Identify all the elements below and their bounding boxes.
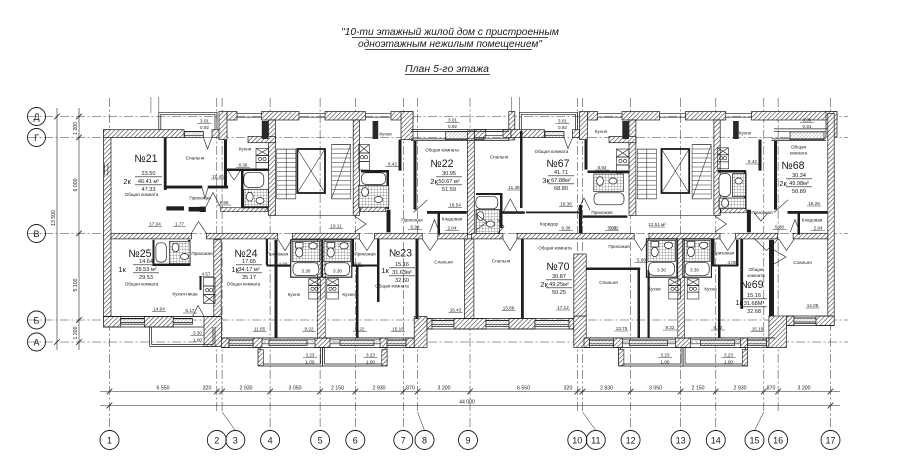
svg-text:49.98м²: 49.98м² — [789, 181, 809, 187]
svg-text:4.00: 4.00 — [353, 262, 362, 267]
svg-text:Б: Б — [34, 315, 40, 325]
svg-text:0.92: 0.92 — [448, 124, 457, 129]
svg-text:Общая комната: Общая комната — [425, 148, 459, 153]
svg-text:комната: комната — [747, 273, 765, 278]
svg-text:16.26: 16.26 — [808, 201, 820, 206]
svg-text:17.04: 17.04 — [149, 222, 161, 227]
svg-text:5.56: 5.56 — [220, 200, 229, 205]
svg-text:Общая комната: Общая комната — [227, 282, 261, 287]
svg-text:1 200: 1 200 — [73, 122, 79, 135]
svg-text:2 930: 2 930 — [240, 385, 253, 391]
svg-text:Общая комната: Общая комната — [538, 246, 572, 251]
svg-text:6 550: 6 550 — [157, 385, 170, 391]
svg-text:Кухня: Кухня — [648, 287, 661, 292]
svg-text:41.71: 41.71 — [554, 170, 568, 176]
svg-text:Кухня-ниша: Кухня-ниша — [172, 292, 198, 297]
svg-text:комната: комната — [790, 151, 808, 156]
svg-text:3: 3 — [233, 435, 238, 445]
svg-text:3 200: 3 200 — [798, 385, 811, 391]
svg-text:6 000: 6 000 — [73, 178, 79, 191]
svg-text:12.51 м²: 12.51 м² — [648, 222, 666, 227]
svg-text:17: 17 — [825, 435, 835, 445]
svg-text:А: А — [33, 337, 39, 347]
svg-text:Спальня: Спальня — [490, 155, 509, 160]
svg-text:План 5-го этажа: План 5-го этажа — [405, 63, 489, 75]
svg-text:67.88м²: 67.88м² — [551, 178, 571, 184]
svg-text:Кладовая: Кладовая — [802, 218, 823, 223]
svg-text:2 150: 2 150 — [331, 385, 344, 391]
svg-text:30.34: 30.34 — [792, 173, 806, 179]
svg-text:51.59: 51.59 — [442, 187, 456, 193]
svg-text:31.68М²: 31.68М² — [744, 301, 765, 307]
svg-text:9.22: 9.22 — [356, 327, 365, 332]
svg-text:8.92: 8.92 — [598, 165, 607, 170]
svg-text:Прихожая: Прихожая — [608, 244, 630, 249]
svg-text:4.00: 4.00 — [279, 262, 288, 267]
svg-text:15: 15 — [749, 435, 759, 445]
svg-text:Спальня: Спальня — [599, 280, 618, 285]
svg-text:0.92: 0.92 — [558, 125, 567, 130]
svg-text:14: 14 — [711, 435, 721, 445]
svg-text:Кухня: Кухня — [595, 129, 608, 134]
svg-text:5.96: 5.96 — [411, 225, 420, 230]
svg-text:31.63м²: 31.63м² — [392, 270, 412, 276]
svg-text:11.65: 11.65 — [254, 327, 266, 332]
svg-text:8: 8 — [422, 435, 427, 445]
svg-text:5 100: 5 100 — [73, 278, 79, 291]
svg-text:8.42: 8.42 — [388, 162, 397, 167]
svg-text:8.36: 8.36 — [239, 163, 248, 168]
svg-text:6.17: 6.17 — [186, 308, 195, 313]
svg-text:11.49: 11.49 — [508, 185, 520, 190]
svg-text:15.16: 15.16 — [747, 293, 761, 299]
svg-text:3.99: 3.99 — [803, 118, 812, 123]
svg-text:1к: 1к — [381, 266, 389, 275]
svg-text:1к: 1к — [118, 265, 126, 274]
svg-text:16.36: 16.36 — [560, 202, 572, 207]
svg-text:1.00: 1.00 — [724, 360, 733, 365]
svg-text:17.65: 17.65 — [242, 259, 256, 265]
svg-text:9.22: 9.22 — [305, 327, 314, 332]
svg-text:2 930: 2 930 — [600, 385, 613, 391]
svg-text:10: 10 — [572, 435, 582, 445]
svg-text:3 050: 3 050 — [649, 385, 662, 391]
svg-text:1.00: 1.00 — [661, 360, 670, 365]
svg-text:Г: Г — [34, 133, 39, 143]
svg-text:Кухня: Кухня — [704, 287, 717, 292]
svg-text:16: 16 — [773, 435, 783, 445]
svg-text:870: 870 — [767, 385, 776, 391]
svg-text:2 930: 2 930 — [734, 385, 747, 391]
svg-text:№23: №23 — [389, 248, 412, 260]
svg-text:34.17 м²: 34.17 м² — [238, 267, 259, 273]
svg-text:12: 12 — [626, 435, 636, 445]
svg-text:16.43: 16.43 — [450, 308, 462, 313]
svg-text:№70: №70 — [546, 261, 569, 273]
svg-text:15.16: 15.16 — [392, 327, 404, 332]
svg-text:3.01: 3.01 — [200, 119, 209, 124]
svg-text:Д: Д — [33, 112, 39, 122]
svg-text:3 200: 3 200 — [438, 385, 451, 391]
svg-text:Спальня: Спальня — [186, 156, 205, 161]
svg-text:8.42: 8.42 — [748, 159, 757, 164]
svg-text:Прихожая: Прихожая — [713, 251, 735, 256]
svg-text:3.23: 3.23 — [724, 353, 733, 358]
svg-text:Кухня: Кухня — [342, 292, 355, 297]
svg-text:29.53: 29.53 — [139, 275, 153, 281]
svg-text:28.53 м²: 28.53 м² — [135, 267, 156, 273]
svg-text:11: 11 — [591, 435, 600, 445]
svg-text:2 150: 2 150 — [692, 385, 705, 391]
svg-text:2 930: 2 930 — [373, 385, 386, 391]
svg-text:6 550: 6 550 — [517, 385, 530, 391]
svg-text:Кухня: Кухня — [239, 147, 252, 152]
svg-text:50.67 м²: 50.67 м² — [438, 179, 459, 185]
svg-text:4.00: 4.00 — [728, 260, 737, 265]
svg-text:23.50: 23.50 — [142, 171, 156, 177]
svg-text:3.23: 3.23 — [366, 353, 375, 358]
svg-text:№68: №68 — [781, 160, 804, 172]
svg-text:Прихожая: Прихожая — [191, 251, 213, 256]
svg-text:Спальня: Спальня — [434, 260, 453, 265]
svg-text:5.86: 5.86 — [637, 258, 646, 263]
svg-text:В: В — [33, 229, 39, 239]
svg-text:1.00: 1.00 — [366, 360, 375, 365]
svg-text:16.54: 16.54 — [449, 203, 461, 208]
svg-text:3.30: 3.30 — [302, 269, 311, 274]
svg-text:14.08: 14.08 — [807, 303, 819, 308]
svg-text:13 500: 13 500 — [51, 210, 57, 226]
svg-text:49.25м²: 49.25м² — [549, 282, 569, 288]
svg-text:4.57: 4.57 — [202, 272, 211, 277]
svg-text:Прихожая: Прихожая — [591, 210, 613, 215]
svg-text:3.23: 3.23 — [661, 353, 670, 358]
svg-text:Общая комната: Общая комната — [375, 284, 409, 289]
svg-text:0.91: 0.91 — [803, 124, 812, 129]
svg-text:Прихожая: Прихожая — [401, 218, 423, 223]
svg-text:Кладовая: Кладовая — [442, 217, 463, 222]
svg-text:44 000: 44 000 — [459, 399, 475, 405]
svg-text:3.30: 3.30 — [193, 331, 202, 336]
svg-text:Прихожая: Прихожая — [267, 252, 289, 257]
svg-text:10.46: 10.46 — [212, 174, 224, 179]
svg-text:1к: 1к — [735, 298, 743, 307]
svg-text:7: 7 — [401, 435, 406, 445]
svg-text:№69: №69 — [740, 279, 763, 291]
svg-text:30.95: 30.95 — [442, 171, 456, 177]
svg-text:№22: №22 — [430, 158, 453, 170]
svg-text:6: 6 — [353, 435, 358, 445]
svg-text:Общая: Общая — [791, 145, 807, 150]
svg-text:Прихожая: Прихожая — [189, 196, 211, 201]
svg-text:35.17: 35.17 — [242, 275, 256, 281]
svg-text:Прихожая: Прихожая — [751, 210, 773, 215]
svg-text:№21: №21 — [134, 153, 157, 165]
svg-text:1.77: 1.77 — [175, 222, 184, 227]
svg-text:17.12: 17.12 — [557, 305, 569, 310]
svg-text:5: 5 — [318, 435, 323, 445]
svg-text:320: 320 — [564, 385, 573, 391]
svg-text:1.00: 1.00 — [306, 360, 315, 365]
svg-text:1.00: 1.00 — [193, 338, 202, 343]
svg-text:Общая комната: Общая комната — [535, 149, 569, 154]
svg-text:Кухня: Кухня — [739, 131, 752, 136]
svg-text:15.16: 15.16 — [752, 327, 764, 332]
svg-text:Общая комната: Общая комната — [125, 282, 159, 287]
svg-text:5.88: 5.88 — [775, 225, 784, 230]
svg-text:Общая: Общая — [748, 267, 764, 272]
svg-text:13: 13 — [676, 435, 686, 445]
svg-text:9: 9 — [465, 435, 470, 445]
svg-text:68.80: 68.80 — [554, 186, 568, 192]
svg-text:50.25: 50.25 — [552, 290, 566, 296]
svg-text:2.84: 2.84 — [814, 226, 823, 231]
svg-text:15.16: 15.16 — [395, 262, 409, 268]
svg-text:2: 2 — [214, 435, 219, 445]
svg-text:3 050: 3 050 — [289, 385, 302, 391]
svg-text:3.30: 3.30 — [333, 269, 342, 274]
svg-text:3.23: 3.23 — [306, 353, 315, 358]
svg-text:46.41 м²: 46.41 м² — [138, 179, 159, 185]
svg-text:Кухня: Кухня — [288, 292, 301, 297]
svg-text:3.30: 3.30 — [690, 268, 699, 273]
svg-text:50.89: 50.89 — [792, 189, 806, 195]
svg-text:Спальня: Спальня — [793, 260, 812, 265]
svg-text:Общая комната: Общая комната — [125, 192, 159, 197]
svg-text:3.01: 3.01 — [448, 118, 457, 123]
svg-text:14.64: 14.64 — [153, 307, 165, 312]
svg-text:870: 870 — [406, 385, 415, 391]
svg-text:№67: №67 — [546, 158, 569, 170]
svg-text:19.11: 19.11 — [330, 224, 342, 229]
svg-text:Спальня: Спальня — [492, 259, 511, 264]
svg-text:6.38: 6.38 — [562, 226, 571, 231]
svg-text:9.22: 9.22 — [714, 325, 723, 330]
svg-text:3.01: 3.01 — [558, 119, 567, 124]
svg-text:14.64: 14.64 — [139, 259, 153, 265]
svg-text:Прихожая: Прихожая — [354, 252, 376, 257]
svg-text:2к: 2к — [123, 177, 131, 186]
svg-text:13.75: 13.75 — [616, 326, 628, 331]
svg-text:1: 1 — [107, 435, 112, 445]
svg-text:13.86: 13.86 — [503, 306, 515, 311]
svg-text:0.92: 0.92 — [200, 125, 209, 130]
svg-text:9.22: 9.22 — [666, 325, 675, 330]
svg-text:3.30: 3.30 — [657, 268, 666, 273]
svg-text:1 200: 1 200 — [73, 326, 79, 339]
svg-text:"10-ти этажный жилой дом с при: "10-ти этажный жилой дом с пристроенным — [341, 27, 559, 38]
svg-text:320: 320 — [203, 385, 212, 391]
svg-text:32.68: 32.68 — [747, 309, 761, 315]
svg-text:5.32: 5.32 — [610, 226, 619, 231]
svg-text:Кухня: Кухня — [379, 132, 392, 137]
svg-text:2.04: 2.04 — [448, 226, 457, 231]
svg-text:Коридор: Коридор — [540, 222, 559, 227]
svg-text:одноэтажным нежилым помещением: одноэтажным нежилым помещением" — [358, 39, 542, 50]
svg-text:4: 4 — [268, 435, 273, 445]
svg-text:30.87: 30.87 — [552, 274, 566, 280]
